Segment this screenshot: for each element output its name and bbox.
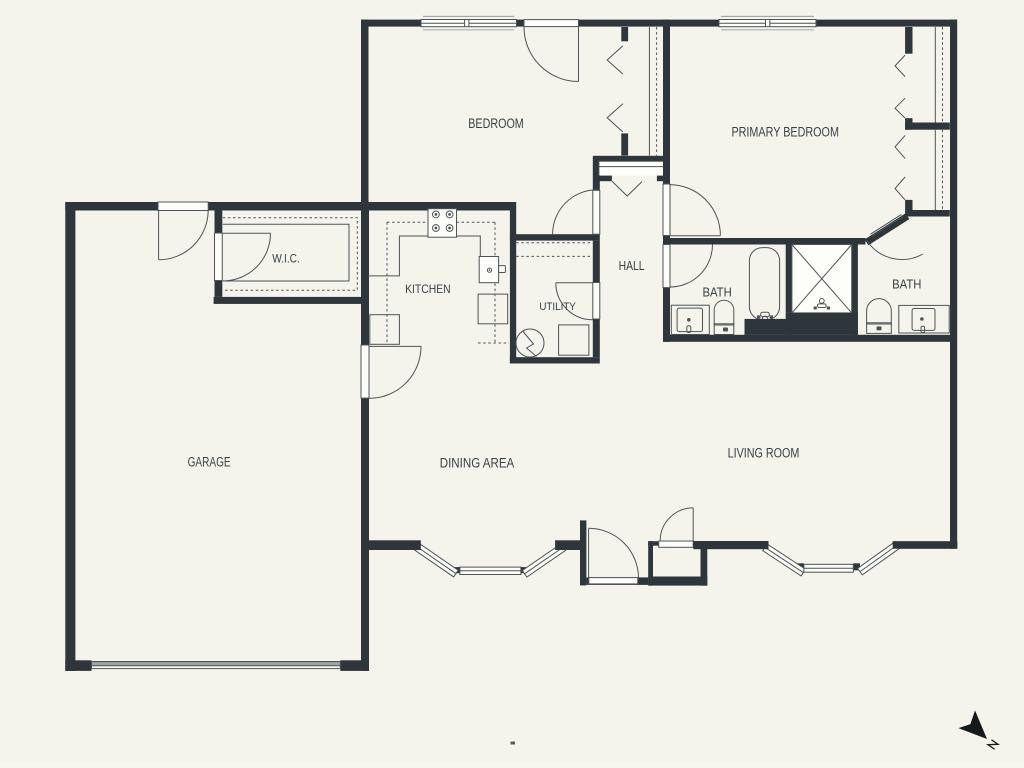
svg-text:KITCHEN: KITCHEN bbox=[405, 282, 451, 296]
svg-text:LIVING ROOM: LIVING ROOM bbox=[728, 446, 800, 461]
svg-text:BATH: BATH bbox=[702, 285, 731, 299]
svg-text:PRIMARY BEDROOM: PRIMARY BEDROOM bbox=[731, 125, 839, 140]
svg-text:BATH: BATH bbox=[892, 277, 921, 291]
svg-text:UTILITY: UTILITY bbox=[539, 301, 576, 313]
svg-text:DINING AREA: DINING AREA bbox=[440, 455, 515, 470]
svg-text:W.I.C.: W.I.C. bbox=[272, 253, 300, 265]
svg-text:BEDROOM: BEDROOM bbox=[468, 116, 524, 131]
svg-text:HALL: HALL bbox=[619, 259, 645, 273]
svg-text:GARAGE: GARAGE bbox=[188, 454, 231, 469]
